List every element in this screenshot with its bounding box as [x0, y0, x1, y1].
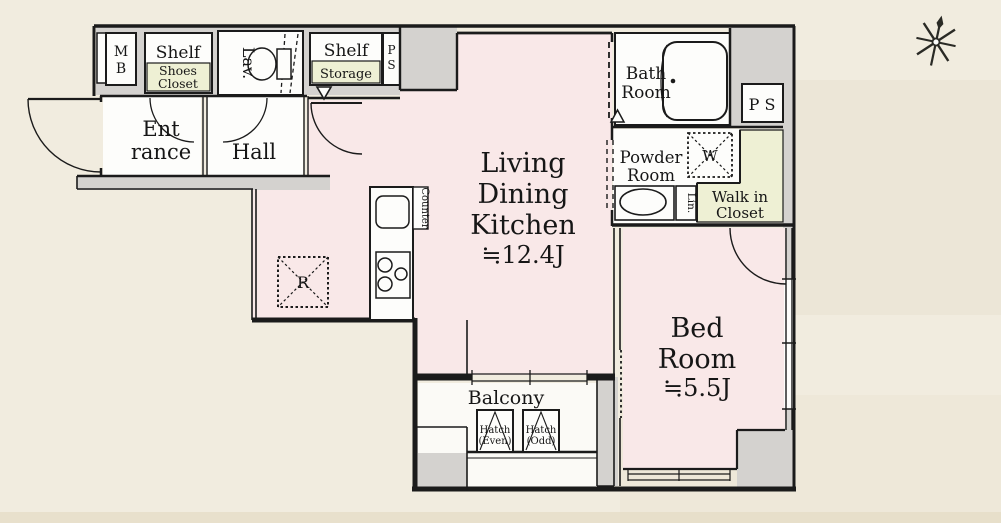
shelf-left-label: Shelf — [156, 43, 202, 63]
lav-label: Lav. — [239, 47, 258, 79]
room-balcony-left — [418, 383, 467, 427]
burner — [378, 277, 392, 291]
background-photo-ghost — [795, 80, 1001, 315]
bath-label: Room — [621, 83, 670, 103]
floor-plan: Living Dining Kitchen ≒12.4J Bed Room ≒5… — [0, 0, 1001, 523]
hatch-even-label: Hatch — [480, 425, 511, 436]
shoes-closet-label: Closet — [158, 76, 198, 91]
bedroom-label: Bed — [670, 313, 723, 344]
burner — [395, 268, 407, 280]
balcony-label: Balcony — [468, 387, 545, 409]
storage-label: Storage — [320, 67, 372, 82]
ldk-label: Dining — [478, 179, 569, 210]
mb-label: B — [116, 61, 126, 77]
ldk-area-label: ≒12.4J — [481, 241, 564, 269]
refrigerator-label: R — [297, 273, 310, 292]
hatch-odd-label: (Odd) — [527, 436, 556, 447]
meter-box — [97, 33, 106, 83]
powder-label: Powder — [620, 148, 683, 167]
shelf-right-label: Shelf — [324, 41, 370, 61]
background-edge — [0, 512, 1001, 523]
wic-label: Closet — [716, 204, 764, 222]
hall-label: Hall — [232, 140, 277, 164]
ldk-label: Kitchen — [470, 210, 576, 241]
bath-label: Bath — [626, 64, 666, 84]
vanity-sink-icon — [620, 189, 666, 215]
ps-top-label: S — [387, 58, 395, 72]
linen-label: Lin. — [685, 193, 697, 213]
mb-label: M — [114, 44, 128, 60]
bathtub-drain — [671, 79, 676, 84]
bedroom-label: Room — [658, 344, 736, 375]
powder-label: Room — [627, 166, 675, 185]
ldk-label: Living — [480, 148, 565, 179]
counter-label: Counter — [419, 187, 430, 228]
burner — [378, 258, 392, 272]
entrance-label: rance — [131, 140, 191, 164]
hatch-odd-label: Hatch — [526, 425, 557, 436]
bedroom-area-label: ≒5.5J — [663, 374, 731, 402]
entrance-label: Ent — [142, 117, 180, 141]
kitchen-sink-icon — [376, 196, 409, 228]
hatch-even-label: (Even) — [478, 436, 511, 447]
room-hall — [208, 97, 303, 176]
ps-top-label: P — [387, 43, 395, 57]
ps-right-label: P S — [749, 95, 776, 114]
toilet-tank — [277, 49, 291, 79]
floor-plan-canvas: Living Dining Kitchen ≒12.4J Bed Room ≒5… — [0, 0, 1001, 523]
washer-label: W — [702, 147, 718, 165]
